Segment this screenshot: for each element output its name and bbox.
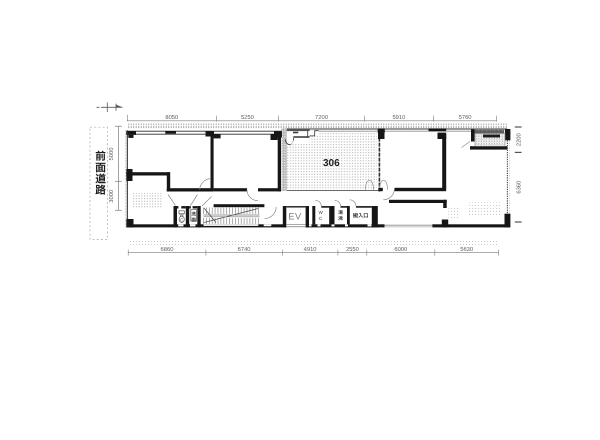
svg-text:4910: 4910: [304, 246, 317, 253]
svg-text:8050: 8050: [165, 114, 178, 121]
svg-text:6360: 6360: [516, 181, 523, 194]
svg-text:6000: 6000: [394, 246, 407, 253]
svg-text:6740: 6740: [238, 246, 251, 253]
svg-text:5910: 5910: [392, 114, 405, 121]
svg-text:5630: 5630: [460, 246, 473, 253]
svg-text:2550: 2550: [346, 246, 359, 253]
svg-text:306: 306: [323, 158, 340, 169]
svg-text:EV: EV: [288, 211, 302, 221]
svg-text:2200: 2200: [516, 133, 523, 146]
svg-text:7200: 7200: [315, 114, 328, 121]
svg-text:5760: 5760: [459, 114, 472, 121]
svg-text:6860: 6860: [161, 246, 174, 253]
svg-text:3000: 3000: [108, 190, 115, 203]
svg-text:W: W: [318, 210, 323, 215]
svg-text:5000: 5000: [108, 148, 115, 161]
svg-text:5250: 5250: [241, 114, 254, 121]
